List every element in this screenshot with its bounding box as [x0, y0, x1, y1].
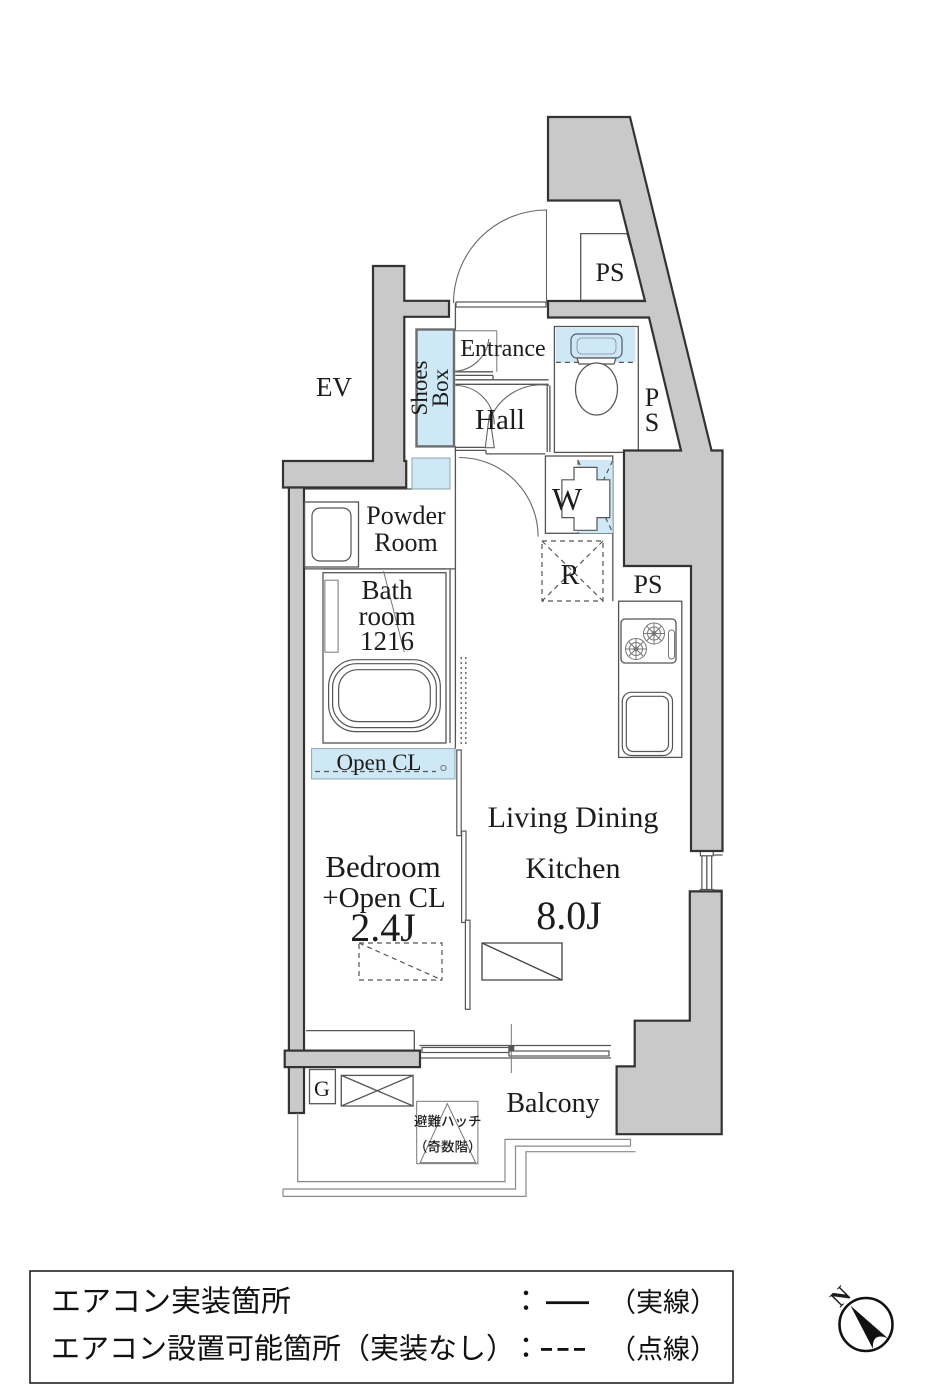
svg-text:1216: 1216 [360, 626, 414, 656]
svg-text:G: G [314, 1076, 330, 1101]
svg-text:Living Dining: Living Dining [488, 801, 659, 834]
svg-text:Kitchen: Kitchen [526, 852, 621, 885]
svg-text:EV: EV [316, 372, 352, 402]
svg-text:Balcony: Balcony [506, 1088, 599, 1119]
svg-text:Room: Room [374, 528, 438, 557]
svg-text:2.4J: 2.4J [350, 905, 416, 950]
svg-text:Box: Box [428, 368, 453, 407]
svg-text:S: S [645, 408, 659, 437]
svg-text:Entrance: Entrance [460, 336, 545, 362]
svg-text:PS: PS [596, 258, 625, 287]
svg-text:Hall: Hall [475, 404, 525, 436]
svg-text:8.0J: 8.0J [536, 893, 602, 938]
svg-text:R: R [561, 560, 580, 591]
svg-text:W: W [552, 481, 583, 517]
svg-text:Bedroom: Bedroom [325, 849, 440, 884]
svg-text:PS: PS [634, 570, 663, 599]
svg-text:Open CL: Open CL [337, 750, 422, 775]
svg-text:Powder: Powder [366, 501, 446, 530]
